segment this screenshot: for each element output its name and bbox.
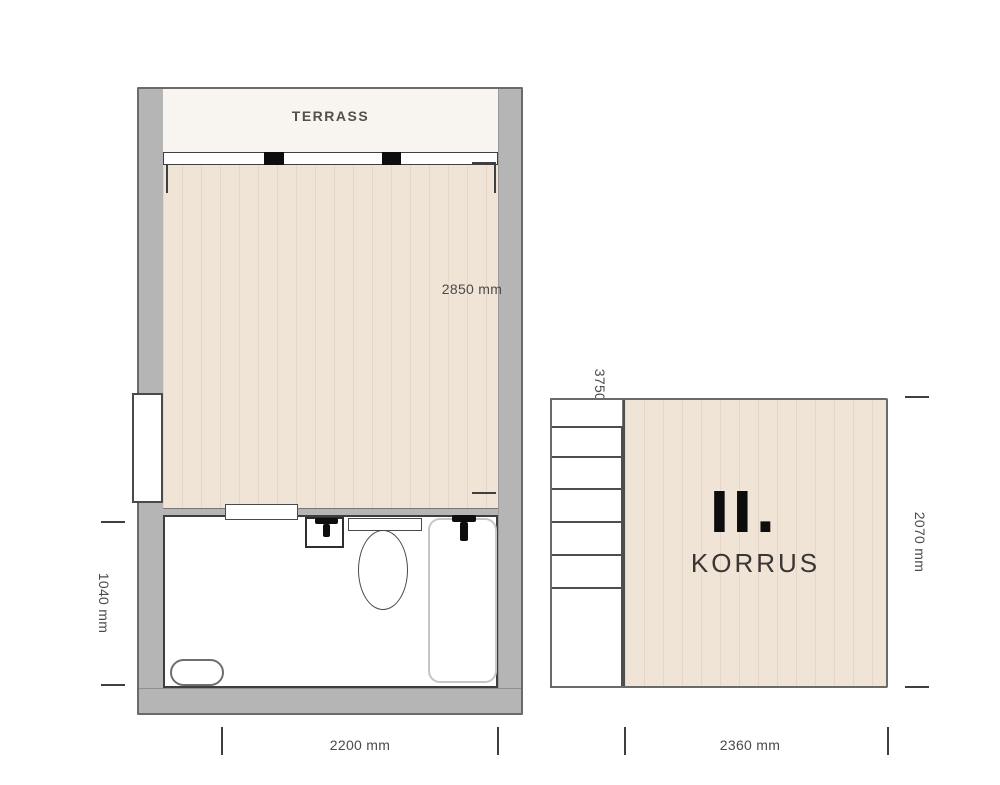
stair-landing (550, 587, 623, 688)
sliding-glass-door (163, 152, 498, 165)
floor2-name: KORRUS (623, 548, 888, 579)
floor2-plan: II. KORRUS (550, 398, 888, 688)
stair-step (550, 554, 623, 589)
tick-mark (101, 521, 125, 523)
terrace-label: TERRASS (163, 108, 498, 124)
main-room-floor (163, 165, 498, 508)
tick-mark (905, 396, 929, 398)
door-frame-marker-icon (264, 152, 284, 165)
toilet-cistern (348, 518, 422, 531)
dimension-floor2-depth: 2070 mm (912, 482, 928, 602)
stair-step (550, 426, 623, 458)
side-window (132, 393, 163, 503)
tick-mark (221, 727, 223, 755)
dimension-room-width: 2850 mm (392, 281, 552, 297)
dimension-unit-width: 2200 mm (280, 737, 440, 753)
terrace-area: TERRASS (163, 87, 498, 152)
floor1-bottom-wall (137, 688, 523, 715)
tick-mark (905, 686, 929, 688)
tick-mark (887, 727, 889, 755)
stair-step (550, 488, 623, 523)
stair-step (550, 521, 623, 556)
floor2-label-group: II. KORRUS (623, 486, 888, 579)
bath-mat (170, 659, 224, 686)
tick-mark (472, 492, 496, 494)
floor2-numeral: II. (709, 486, 778, 542)
tick-mark (497, 727, 499, 755)
toilet-bowl (358, 530, 408, 610)
shower-faucet-icon (460, 522, 468, 541)
pass-through-window (225, 504, 298, 520)
floor-plan-drawing: { "floor1": { "terrace_label": "TERRASS"… (0, 0, 1000, 785)
stair-step (550, 456, 623, 490)
door-frame-marker-icon (382, 152, 401, 165)
dimension-floor2-width: 2360 mm (670, 737, 830, 753)
bathroom-divider-wall (163, 508, 498, 517)
floor1-right-wall (498, 87, 523, 715)
shower-faucet-icon (452, 515, 476, 522)
floor1-plan: TERRASS 2850 mm 3750 mm (137, 87, 523, 715)
tick-mark (472, 162, 496, 164)
tick-mark (101, 684, 125, 686)
shower-tray (428, 518, 497, 683)
tick-mark (624, 727, 626, 755)
tick-mark (494, 165, 496, 193)
tick-mark (166, 165, 168, 193)
dimension-bathroom-depth: 1040 mm (96, 543, 112, 663)
sink-faucet-icon (323, 524, 330, 537)
stair-step (550, 398, 623, 428)
